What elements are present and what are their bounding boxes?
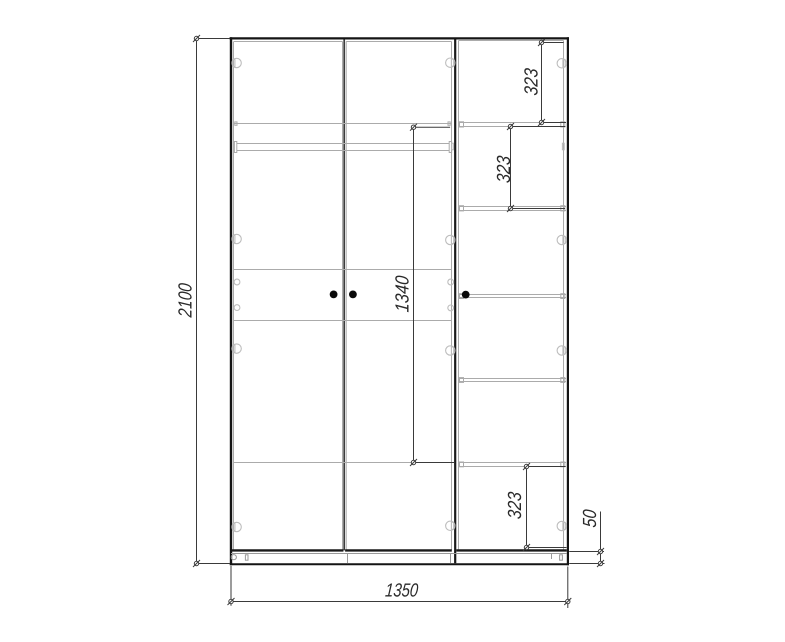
svg-text:323: 323 xyxy=(504,491,526,520)
svg-text:1350: 1350 xyxy=(384,580,419,601)
svg-text:50: 50 xyxy=(579,508,601,528)
svg-text:2100: 2100 xyxy=(174,282,196,319)
svg-text:1340: 1340 xyxy=(391,275,412,313)
svg-text:323: 323 xyxy=(520,67,542,96)
svg-text:323: 323 xyxy=(493,155,515,184)
